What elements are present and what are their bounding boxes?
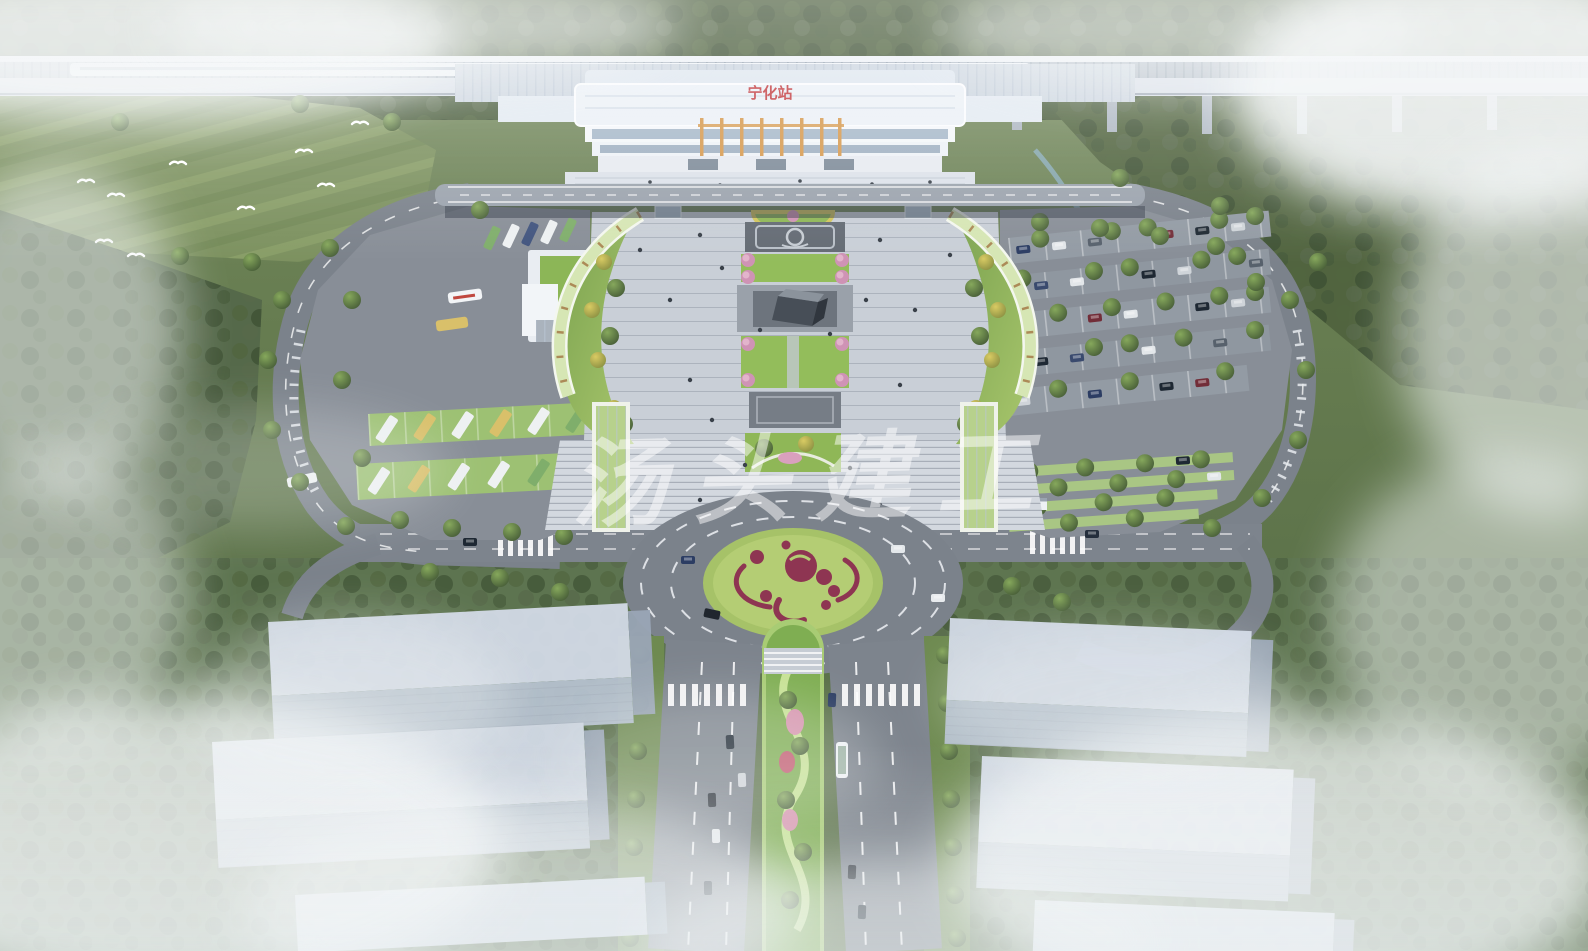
aerial-render-scene: 宁化站 (0, 0, 1588, 951)
atmospheric-haze (0, 0, 1588, 951)
